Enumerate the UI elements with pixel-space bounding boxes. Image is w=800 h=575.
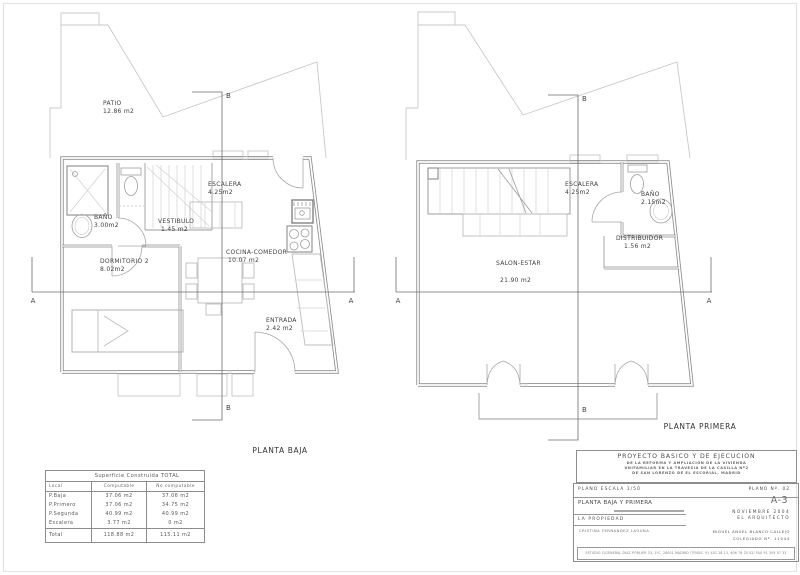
room-label-escalera-pp: ESCALERA: [565, 181, 599, 188]
areas-table-title: Superficie Construida TOTAL: [46, 471, 204, 482]
architect-name: MIGUEL ANGEL BLANCO CALLEJO: [713, 530, 790, 534]
architect-label: EL ARQUITECTO: [737, 516, 790, 521]
title-block-main: PLANO ESCALA 1/50 PLANO Nº. 02 PLANTA BA…: [573, 483, 799, 562]
room-label-distribuidor: DISTRIBUIDOR: [616, 235, 663, 242]
cell-computable: 37.06 m2: [92, 501, 147, 510]
room-area-escalera-pb: 4.25m2: [208, 189, 233, 196]
drawing-sheet: PATIO 12.86 m2 ESCALERA 4.25m2 BAÑO 3.00…: [0, 0, 800, 575]
cell-no-computable: 40.99 m2: [147, 510, 204, 519]
areas-table: Superficie Construida TOTAL Local Comput…: [45, 470, 205, 543]
kitchen-sink-icon: [292, 200, 313, 223]
plan-title-planta-baja: PLANTA BAJA: [252, 446, 307, 455]
sheet-code: A-3: [771, 495, 788, 506]
stove-icon: [287, 226, 312, 252]
project-subtitle-1: DE LA REFORMA Y AMPLIACIÓN DE LA VIVIEND…: [577, 461, 796, 465]
section-label-a3: A: [396, 297, 401, 305]
table-row: P.Segunda 40.99 m2 40.99 m2: [46, 510, 204, 519]
areas-table-header-row: Local Computable No computable: [46, 482, 204, 492]
section-label-a4: A: [707, 297, 712, 305]
section-label-b4: B: [582, 406, 587, 414]
section-label-b1: B: [226, 92, 231, 100]
cell-total-computable: 118.88 m2: [92, 529, 147, 542]
divider: [574, 514, 686, 515]
cell-local: Escalera: [46, 519, 92, 528]
cell-local: P.Segunda: [46, 510, 92, 519]
washbasin-icon: [72, 215, 92, 238]
room-area-patio: 12.86 m2: [103, 108, 134, 115]
header-no-computable: No computable: [147, 482, 204, 491]
cell-computable: 40.99 m2: [92, 510, 147, 519]
room-label-dormitorio: DORMITORIO 2: [100, 258, 149, 265]
section-label-a2: A: [349, 297, 354, 305]
cell-no-computable: 37.06 m2: [147, 492, 204, 501]
plano-number: PLANO Nº. 02: [749, 487, 790, 492]
room-area-salon: 21.90 m2: [500, 277, 531, 284]
cell-total-label: Total: [46, 529, 92, 542]
divider: [574, 497, 798, 498]
table-row: P.Primero 37.06 m2 34.75 m2: [46, 501, 204, 510]
cell-total-no-computable: 115.11 m2: [147, 529, 204, 542]
door-arcs: [592, 192, 622, 222]
section-label-b3: B: [582, 95, 587, 103]
room-area-escalera-pp: 4.25m2: [565, 189, 590, 196]
section-label-a1: A: [31, 297, 36, 305]
colegiado-number: COLEGIADO Nº. 11044: [733, 537, 790, 541]
cell-local: P.Baja: [46, 492, 92, 501]
header-computable: Computable: [92, 482, 147, 491]
toilet-icon: [628, 165, 647, 194]
plan-title-planta-primera: PLANTA PRIMERA: [664, 422, 737, 431]
project-subtitle-2: UNIFAMILIAR EN LA TRAVESIA DE LA CASILLA…: [577, 466, 796, 470]
plan-name: PLANTA BAJA Y PRIMERA: [578, 500, 652, 506]
room-area-cocina: 10.07 m2: [228, 257, 259, 264]
room-label-patio: PATIO: [103, 100, 122, 107]
thick-rule: [614, 510, 684, 512]
table-row: P.Baja 37.06 m2 37.06 m2: [46, 492, 204, 501]
room-label-escalera-pb: ESCALERA: [208, 181, 242, 188]
dining-table: [186, 258, 254, 315]
room-area-bano-pp: 2.15m2: [641, 199, 666, 206]
room-area-dormitorio: 8.02m2: [100, 266, 125, 273]
toilet-icon: [119, 168, 144, 206]
exterior-walls: [62, 158, 337, 372]
plan-planta-baja: PATIO 12.86 m2 ESCALERA 4.25m2 BAÑO 3.00…: [50, 13, 337, 455]
balcony: [479, 393, 657, 419]
bed: [72, 310, 183, 352]
french-doors: [487, 361, 648, 385]
date-label: NOVIEMBRE 2004: [732, 510, 790, 515]
cell-local: P.Primero: [46, 501, 92, 510]
scale-label: PLANO ESCALA 1/50: [578, 487, 641, 492]
room-label-cocina: COCINA-COMEDOR: [226, 249, 287, 256]
studio-address: ESTUDIO C/GENERAL DIAZ PORLIER 33, 1ºC, …: [577, 547, 795, 560]
room-label-bano-pp: BAÑO: [641, 191, 660, 198]
cell-no-computable: 34.75 m2: [147, 501, 204, 510]
kitchen-counter: [292, 254, 333, 345]
plan-planta-primera: ESCALERA 4.25m2 BAÑO 2.15m2 DISTRIBUIDOR…: [406, 12, 737, 431]
room-label-bano-pb: BAÑO: [94, 214, 113, 221]
room-label-salon: SALON-ESTAR: [496, 260, 541, 267]
shower-icon: [67, 166, 108, 215]
project-title: PROYECTO BASICO Y DE EJECUCION: [577, 453, 796, 460]
table-row: Escalera 3.77 m2 0 m2: [46, 519, 204, 528]
room-area-distribuidor: 1.56 m2: [624, 243, 651, 250]
room-label-entrada: ENTRADA: [266, 317, 297, 324]
room-area-entrada: 2.42 m2: [266, 325, 293, 332]
cell-computable: 37.06 m2: [92, 492, 147, 501]
section-label-b2: B: [226, 404, 231, 412]
owner-label: LA PROPIEDAD: [578, 517, 624, 522]
stairs: [428, 168, 570, 236]
room-area-vestibulo: 1.45 m2: [161, 226, 188, 233]
patio-outline: [406, 12, 690, 160]
cell-no-computable: 0 m2: [147, 519, 204, 528]
divider: [574, 525, 686, 526]
patio-outline: [50, 13, 326, 158]
window-sills: [528, 155, 658, 387]
room-label-vestibulo: VESTIBULO: [158, 218, 194, 225]
cell-computable: 3.77 m2: [92, 519, 147, 528]
owner-name: CRISTINA FERNANDEZ LAGUNA: [579, 529, 649, 533]
table-total-row: Total 118.88 m2 115.11 m2: [46, 528, 204, 542]
room-area-bano-pb: 3.00m2: [94, 222, 119, 229]
project-title-box: PROYECTO BASICO Y DE EJECUCION DE LA REF…: [576, 450, 797, 483]
project-subtitle-3: DE SAN LORENZO DE EL ESCORIAL, MADRID: [577, 471, 796, 475]
header-local: Local: [46, 482, 92, 491]
